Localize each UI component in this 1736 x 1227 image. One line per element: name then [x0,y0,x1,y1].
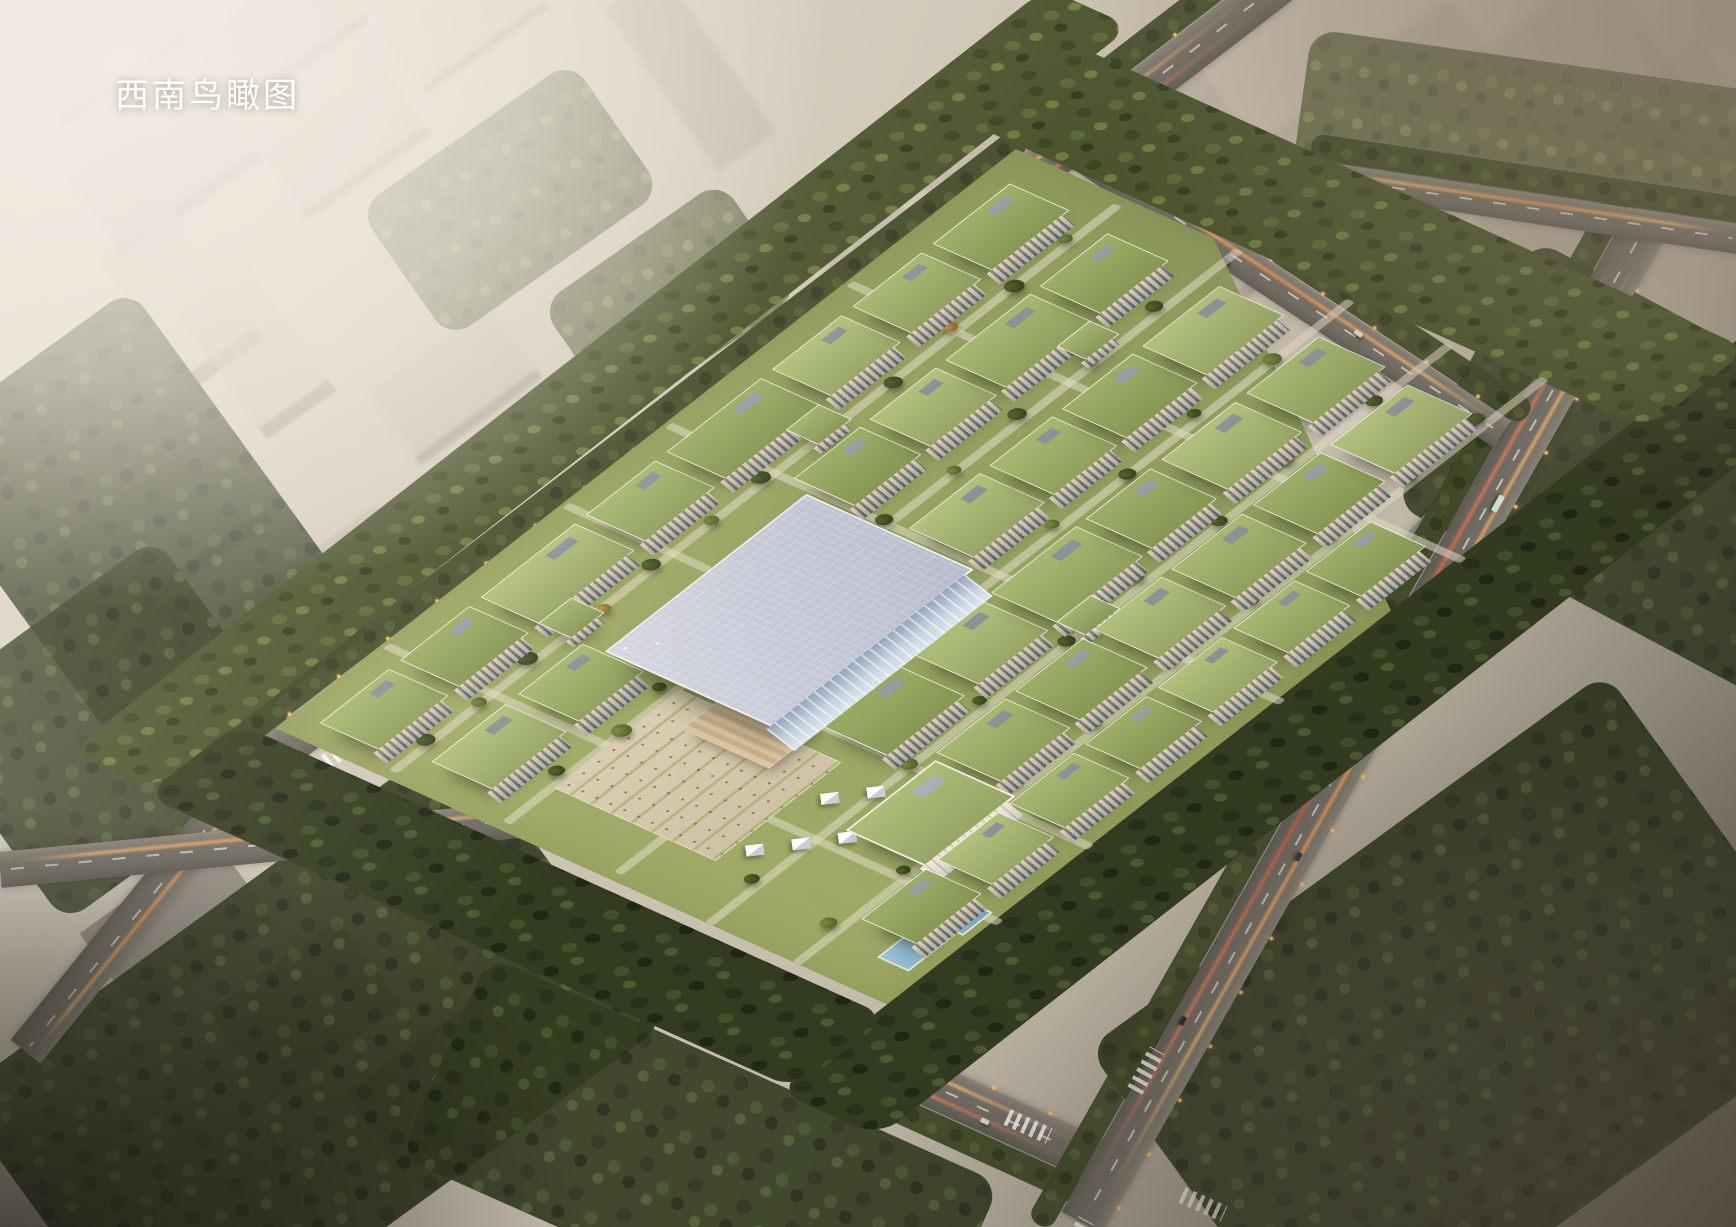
car [980,1117,990,1125]
view-title: 西南鸟瞰图 [115,68,300,117]
pyramid-skylight [791,837,811,850]
car [1178,1016,1187,1026]
pyramid-skylight [866,786,886,799]
car [1294,852,1303,862]
pyramid-skylight [745,844,765,857]
pyramid-skylight [820,792,840,805]
crosswalk [1179,1187,1228,1222]
aerial-render: 西南鸟瞰图 [0,0,1736,1227]
